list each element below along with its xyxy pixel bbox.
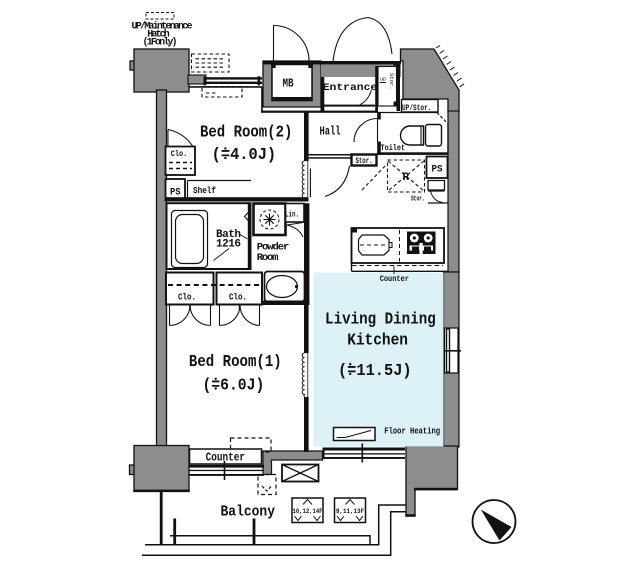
svg-text:Hall: Hall — [320, 124, 341, 138]
svg-text:Bed Room(1): Bed Room(1) — [189, 353, 282, 372]
svg-text:Shelf: Shelf — [193, 185, 216, 196]
svg-text:Stor.: Stor. — [411, 195, 425, 203]
svg-text:Kitchen: Kitchen — [347, 332, 408, 351]
svg-text:(=11.5J): (=11.5J) — [338, 362, 412, 381]
svg-text:up: up — [380, 77, 386, 83]
svg-text:Room: Room — [257, 252, 279, 264]
svg-text:(1Fonly): (1Fonly) — [143, 37, 178, 49]
svg-text:(=4.0J): (=4.0J) — [212, 146, 277, 165]
svg-text:Counter: Counter — [380, 275, 409, 284]
svg-text:Entrance: Entrance — [323, 83, 378, 94]
svg-text:Living Dining: Living Dining — [325, 311, 436, 330]
svg-text:9,11,13F: 9,11,13F — [336, 508, 364, 515]
svg-text:PS: PS — [170, 188, 181, 199]
svg-text:10,12,14F: 10,12,14F — [293, 508, 323, 515]
svg-text:R: R — [403, 172, 410, 184]
svg-text:Clo.: Clo. — [178, 293, 196, 303]
svg-text:Lin.: Lin. — [285, 209, 299, 219]
svg-text:Stor.: Stor. — [356, 157, 373, 166]
svg-text:MB: MB — [283, 78, 294, 91]
svg-text:Floor Heating: Floor Heating — [384, 426, 440, 436]
svg-text:UP/Stor.: UP/Stor. — [402, 103, 432, 113]
svg-text:Clo.: Clo. — [229, 293, 247, 303]
svg-text:Toilet: Toilet — [381, 144, 406, 153]
svg-text:Stor.: Stor. — [388, 73, 395, 90]
svg-text:PS: PS — [432, 165, 443, 176]
svg-text:(=6.0J): (=6.0J) — [203, 377, 265, 396]
svg-text:Bed Room(2): Bed Room(2) — [200, 124, 293, 143]
svg-text:Balcony: Balcony — [221, 504, 276, 521]
svg-text:Clo.: Clo. — [171, 150, 188, 159]
